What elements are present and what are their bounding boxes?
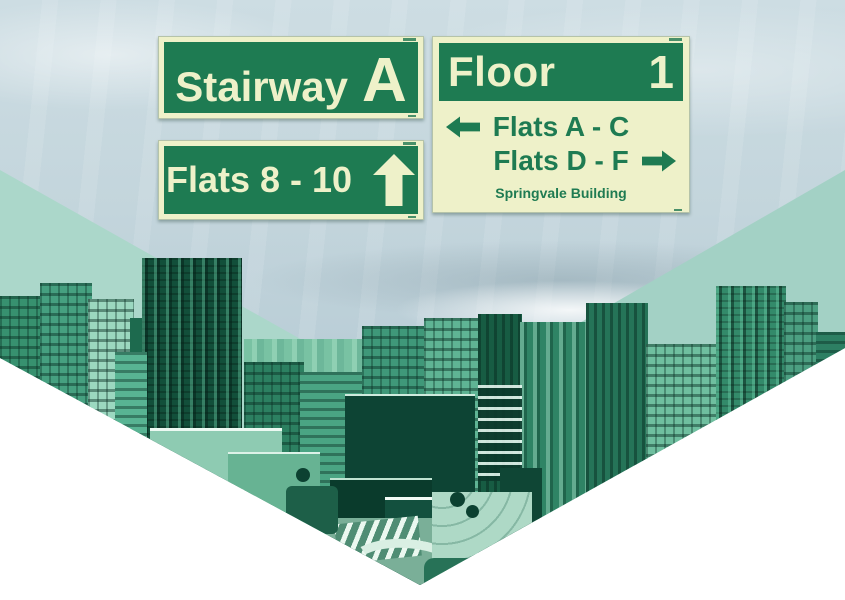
tree [466, 505, 479, 518]
sign-print-mark [408, 216, 416, 218]
floor-number: 1 [648, 49, 674, 95]
lawn [286, 486, 338, 534]
sign-face: Flats 8 - 10 [164, 146, 418, 214]
stairway-label: Stairway [175, 66, 348, 108]
flats-df-label: Flats D - F [493, 145, 628, 176]
city-building [816, 332, 845, 600]
flats-8-10-sign: Flats 8 - 10 [158, 140, 424, 220]
sign-print-mark [403, 142, 416, 145]
floor-directory-sign: Floor 1 Flats A - C Flats D - F Springva… [432, 36, 690, 213]
city-building [0, 296, 44, 600]
floor-title: Floor [448, 51, 555, 93]
building-name-label: Springvale Building [439, 185, 683, 201]
floor-header: Floor 1 [439, 43, 683, 101]
lawn [424, 558, 482, 588]
stairway-letter: A [362, 50, 407, 112]
plaza [432, 492, 532, 587]
sign-print-mark [403, 38, 416, 41]
city-building [586, 303, 648, 600]
tree [296, 468, 310, 482]
right-arrow-icon [641, 149, 677, 173]
tree [450, 492, 465, 507]
city-building [646, 344, 718, 600]
city-building [115, 352, 147, 600]
city-tower [716, 286, 786, 600]
flats-ac-label: Flats A - C [493, 111, 629, 142]
sign-print-mark [669, 38, 682, 41]
balcony-facade [478, 385, 522, 481]
city-building [40, 283, 92, 600]
city-building [520, 322, 588, 600]
directory-row-flats-ac: Flats A - C [439, 111, 683, 143]
hero-banner: Stairway A Flats 8 - 10 Floor 1 Flats A … [0, 0, 845, 600]
left-arrow-icon [445, 115, 481, 139]
sign-face: Stairway A [164, 42, 418, 113]
stairway-a-sign: Stairway A [158, 36, 424, 119]
city-building [784, 302, 818, 600]
flats-range-label: Flats 8 - 10 [166, 162, 352, 198]
up-arrow-icon [372, 154, 416, 206]
directory-row-flats-df: Flats D - F [439, 145, 683, 177]
sign-print-mark [674, 209, 682, 211]
city-building [88, 299, 134, 600]
sign-print-mark [408, 115, 416, 117]
